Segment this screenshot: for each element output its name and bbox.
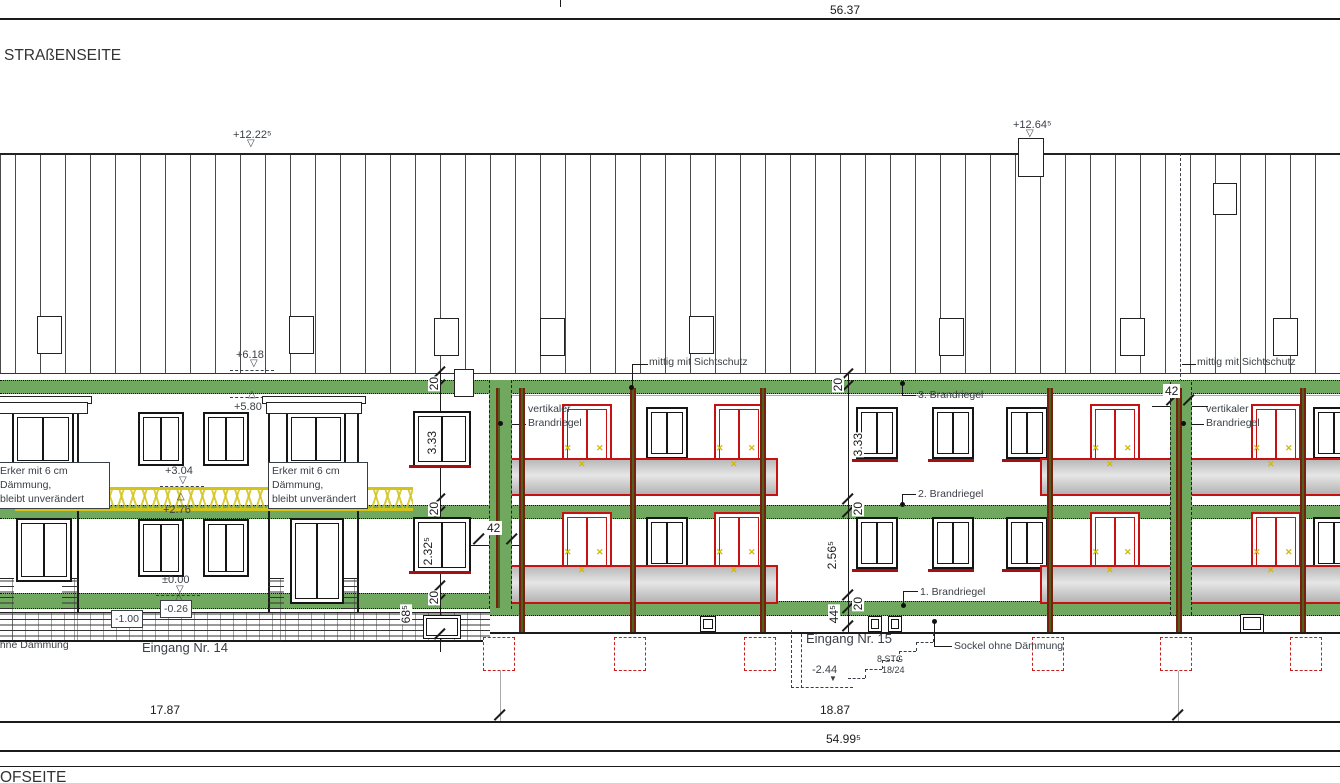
stair-pit <box>791 630 792 688</box>
x-mark-icon: ✕ <box>748 548 756 557</box>
level-base-box: -1.00 <box>111 610 143 628</box>
dim-segment-left: 17.87 <box>148 703 182 717</box>
window-sill <box>928 569 974 572</box>
dim-total-top: 56.37 <box>828 3 862 17</box>
x-mark-icon: ✕ <box>578 460 586 469</box>
x-mark-icon: ✕ <box>1106 566 1114 575</box>
leader-dot <box>900 502 905 507</box>
x-mark-icon: ✕ <box>1106 460 1114 469</box>
leader <box>632 364 648 365</box>
level-marker-up-icon: △ <box>248 390 256 400</box>
x-mark-icon: ✕ <box>730 460 738 469</box>
chain-left-dim: 2.32⁵ <box>422 536 434 566</box>
leader-dot <box>498 421 503 426</box>
window <box>286 412 346 466</box>
brandriegel-band-3 <box>0 380 1340 394</box>
erker-pier <box>62 578 78 641</box>
vertical-brandriegel-strip-left <box>489 380 512 609</box>
roof-dormer <box>37 316 62 354</box>
dim-strip-right: 42 <box>1163 384 1180 398</box>
x-mark-icon: ✕ <box>1285 444 1293 453</box>
x-mark-icon: ✕ <box>1267 460 1275 469</box>
window <box>138 519 184 577</box>
leader-dot <box>901 603 906 608</box>
x-mark-icon: ✕ <box>596 444 604 453</box>
level-marker-up-icon: △ <box>177 492 185 502</box>
x-mark-icon: ✕ <box>748 444 756 453</box>
chain-left-dim: 20 <box>428 376 440 391</box>
level-marker-down-filled-icon: ▼ <box>829 675 837 683</box>
chain-left-dim: 68⁵ <box>400 604 412 624</box>
x-mark-icon: ✕ <box>564 548 572 557</box>
label-brandriegel-2: 2. Brandriegel <box>918 488 983 502</box>
stair-step <box>865 669 866 678</box>
chain-right-dim: 2.56⁵ <box>826 540 838 570</box>
label-vertical-brandriegel-left: vertikaler Brandriegel <box>528 403 602 430</box>
chain-left-dim: 3.33 <box>426 430 438 455</box>
label-sichtschutz-right: mittig mit Sichtschutz <box>1197 356 1296 370</box>
window-sill <box>928 459 974 462</box>
label-stairs-ratio: 18/24 <box>882 665 905 677</box>
socle-window-left <box>423 615 461 639</box>
x-mark-icon: ✕ <box>1253 548 1261 557</box>
window-sill <box>409 465 471 468</box>
x-mark-icon: ✕ <box>1092 548 1100 557</box>
stair-step <box>916 642 917 651</box>
page-title-yard-side: OFSEITE <box>0 768 66 783</box>
top-dimension-line <box>0 18 1340 20</box>
window <box>203 519 249 577</box>
chain-left-dim: 20 <box>428 590 440 605</box>
erker-cornice <box>0 402 88 414</box>
label-sockel: Sockel ohne Dämmung <box>954 640 1063 654</box>
window <box>203 412 249 466</box>
window <box>1006 407 1048 459</box>
leader <box>934 646 952 647</box>
level-marker-down-icon: ▽ <box>1026 129 1034 139</box>
roof-dormer <box>939 318 964 356</box>
balcony-post <box>519 388 525 632</box>
window <box>12 412 74 466</box>
balcony-post <box>1047 388 1053 632</box>
chain-right-dim: 20 <box>852 596 864 611</box>
window <box>1313 407 1340 459</box>
dim-tick <box>473 533 485 545</box>
window-sill <box>409 571 471 574</box>
window <box>932 517 974 569</box>
balcony-post <box>760 388 766 632</box>
roof-dormer <box>1120 318 1145 356</box>
window <box>856 517 898 569</box>
stair-pit <box>801 634 802 688</box>
level-band1-box: -0.26 <box>160 600 192 618</box>
foundation-marker <box>1290 637 1322 671</box>
socle-vent <box>700 616 716 632</box>
leader-dot <box>1181 421 1186 426</box>
bottom-dimension-line-1 <box>0 721 1340 723</box>
foundation-marker <box>1160 637 1192 671</box>
roof-dormer <box>540 318 565 356</box>
label-sichtschutz-left: mittig mit Sichtschutz <box>649 356 748 370</box>
socle-vent <box>868 616 882 632</box>
x-mark-icon: ✕ <box>564 444 572 453</box>
leader <box>902 395 916 396</box>
erker-pier <box>0 578 14 641</box>
downpipe <box>454 369 474 397</box>
x-mark-icon: ✕ <box>1285 548 1293 557</box>
label-brandriegel-1: 1. Brandriegel <box>920 586 985 600</box>
page-title-street-side: STRAßENSEITE <box>4 46 121 66</box>
elevation-drawing: 56.37 STRAßENSEITE OFSEITE +12.22⁵ ▽ +12… <box>0 0 1340 783</box>
chain-right-dim: 44⁵ <box>828 604 840 624</box>
stair-step <box>848 678 865 679</box>
label-stairs-steps: 8 STG <box>877 654 903 666</box>
leader <box>934 621 935 647</box>
socle-vent <box>888 616 902 632</box>
leader <box>902 494 916 495</box>
label-entrance-15: Eingang Nr. 15 <box>806 631 892 648</box>
label-ohne-daemmung: ohne Dämmung <box>0 639 69 653</box>
label-entrance-14: Eingang Nr. 14 <box>142 640 228 657</box>
x-mark-icon: ✕ <box>596 548 604 557</box>
level-marker-down-icon: ▽ <box>250 359 258 369</box>
chain-left-dim: 20 <box>428 501 440 516</box>
level-dash <box>230 370 274 371</box>
socle-vent <box>1240 614 1264 633</box>
ground-line-right <box>490 632 1340 634</box>
x-mark-icon: ✕ <box>1267 566 1275 575</box>
roof-dormer <box>1213 183 1237 215</box>
leader-dot <box>932 619 937 624</box>
x-mark-icon: ✕ <box>1124 548 1132 557</box>
chain-right-dim: 20 <box>832 377 844 392</box>
x-mark-icon: ✕ <box>730 566 738 575</box>
chimney <box>1018 138 1044 177</box>
level-marker-down-icon: ▽ <box>179 476 187 486</box>
dim-segment-mid: 18.87 <box>818 703 852 717</box>
x-mark-icon: ✕ <box>1253 444 1261 453</box>
top-extension-tick <box>560 0 561 7</box>
label-vertical-brandriegel-right: vertikaler Brandriegel <box>1206 403 1280 430</box>
window <box>646 517 688 569</box>
stair-step <box>916 642 933 643</box>
dim-total-bottom: 54.99⁵ <box>824 732 863 746</box>
x-mark-icon: ✕ <box>578 566 586 575</box>
window <box>1313 517 1340 569</box>
window <box>413 411 471 467</box>
foundation-marker <box>744 637 776 671</box>
level-band3: +5.80 <box>234 400 262 414</box>
level-band2: +2.76 <box>163 503 191 517</box>
stair-step <box>899 651 916 652</box>
balcony-post <box>630 388 636 632</box>
bottom-dimension-line-2 <box>0 750 1340 752</box>
erker-cornice <box>266 402 362 414</box>
window <box>932 407 974 459</box>
leader <box>1182 364 1196 365</box>
leader-dot <box>629 385 634 390</box>
roof-dormer <box>1273 318 1298 356</box>
x-mark-icon: ✕ <box>1124 444 1132 453</box>
window <box>1006 517 1048 569</box>
x-mark-icon: ✕ <box>1092 444 1100 453</box>
level-marker-down-icon: ▽ <box>247 139 255 149</box>
bottom-separator-line <box>0 766 1340 767</box>
window-sill <box>852 569 898 572</box>
window <box>646 407 688 459</box>
window <box>138 412 184 466</box>
roof-dormer <box>434 318 459 356</box>
erker-pier <box>268 578 284 641</box>
foundation-marker <box>483 637 515 671</box>
erker-pier <box>342 578 358 641</box>
stair-pit <box>791 687 853 688</box>
stair-step <box>865 669 882 670</box>
erker-note-left: Erker mit 6 cm Dämmung, bleibt unverände… <box>0 462 110 509</box>
leader-dot <box>900 381 905 386</box>
x-mark-icon: ✕ <box>716 548 724 557</box>
window-sill <box>852 459 898 462</box>
window <box>16 518 72 582</box>
roof-axis-dashed-line <box>1180 153 1181 392</box>
chain-right-dim: 3.33 <box>852 432 864 457</box>
foundation-marker <box>614 637 646 671</box>
window <box>290 518 344 604</box>
balcony-post <box>1300 388 1306 632</box>
x-mark-icon: ✕ <box>716 444 724 453</box>
erker-note-right: Erker mit 6 cm Dämmung, bleibt unverände… <box>268 462 368 509</box>
stair-step <box>933 633 934 642</box>
dim-strip-left: 42 <box>485 521 502 535</box>
roof-dormer <box>289 316 314 354</box>
roof-dormer <box>689 316 714 354</box>
leader <box>903 591 918 592</box>
label-brandriegel-3: 3. Brandriegel <box>918 389 983 403</box>
chain-right-dim: 20 <box>852 501 864 516</box>
